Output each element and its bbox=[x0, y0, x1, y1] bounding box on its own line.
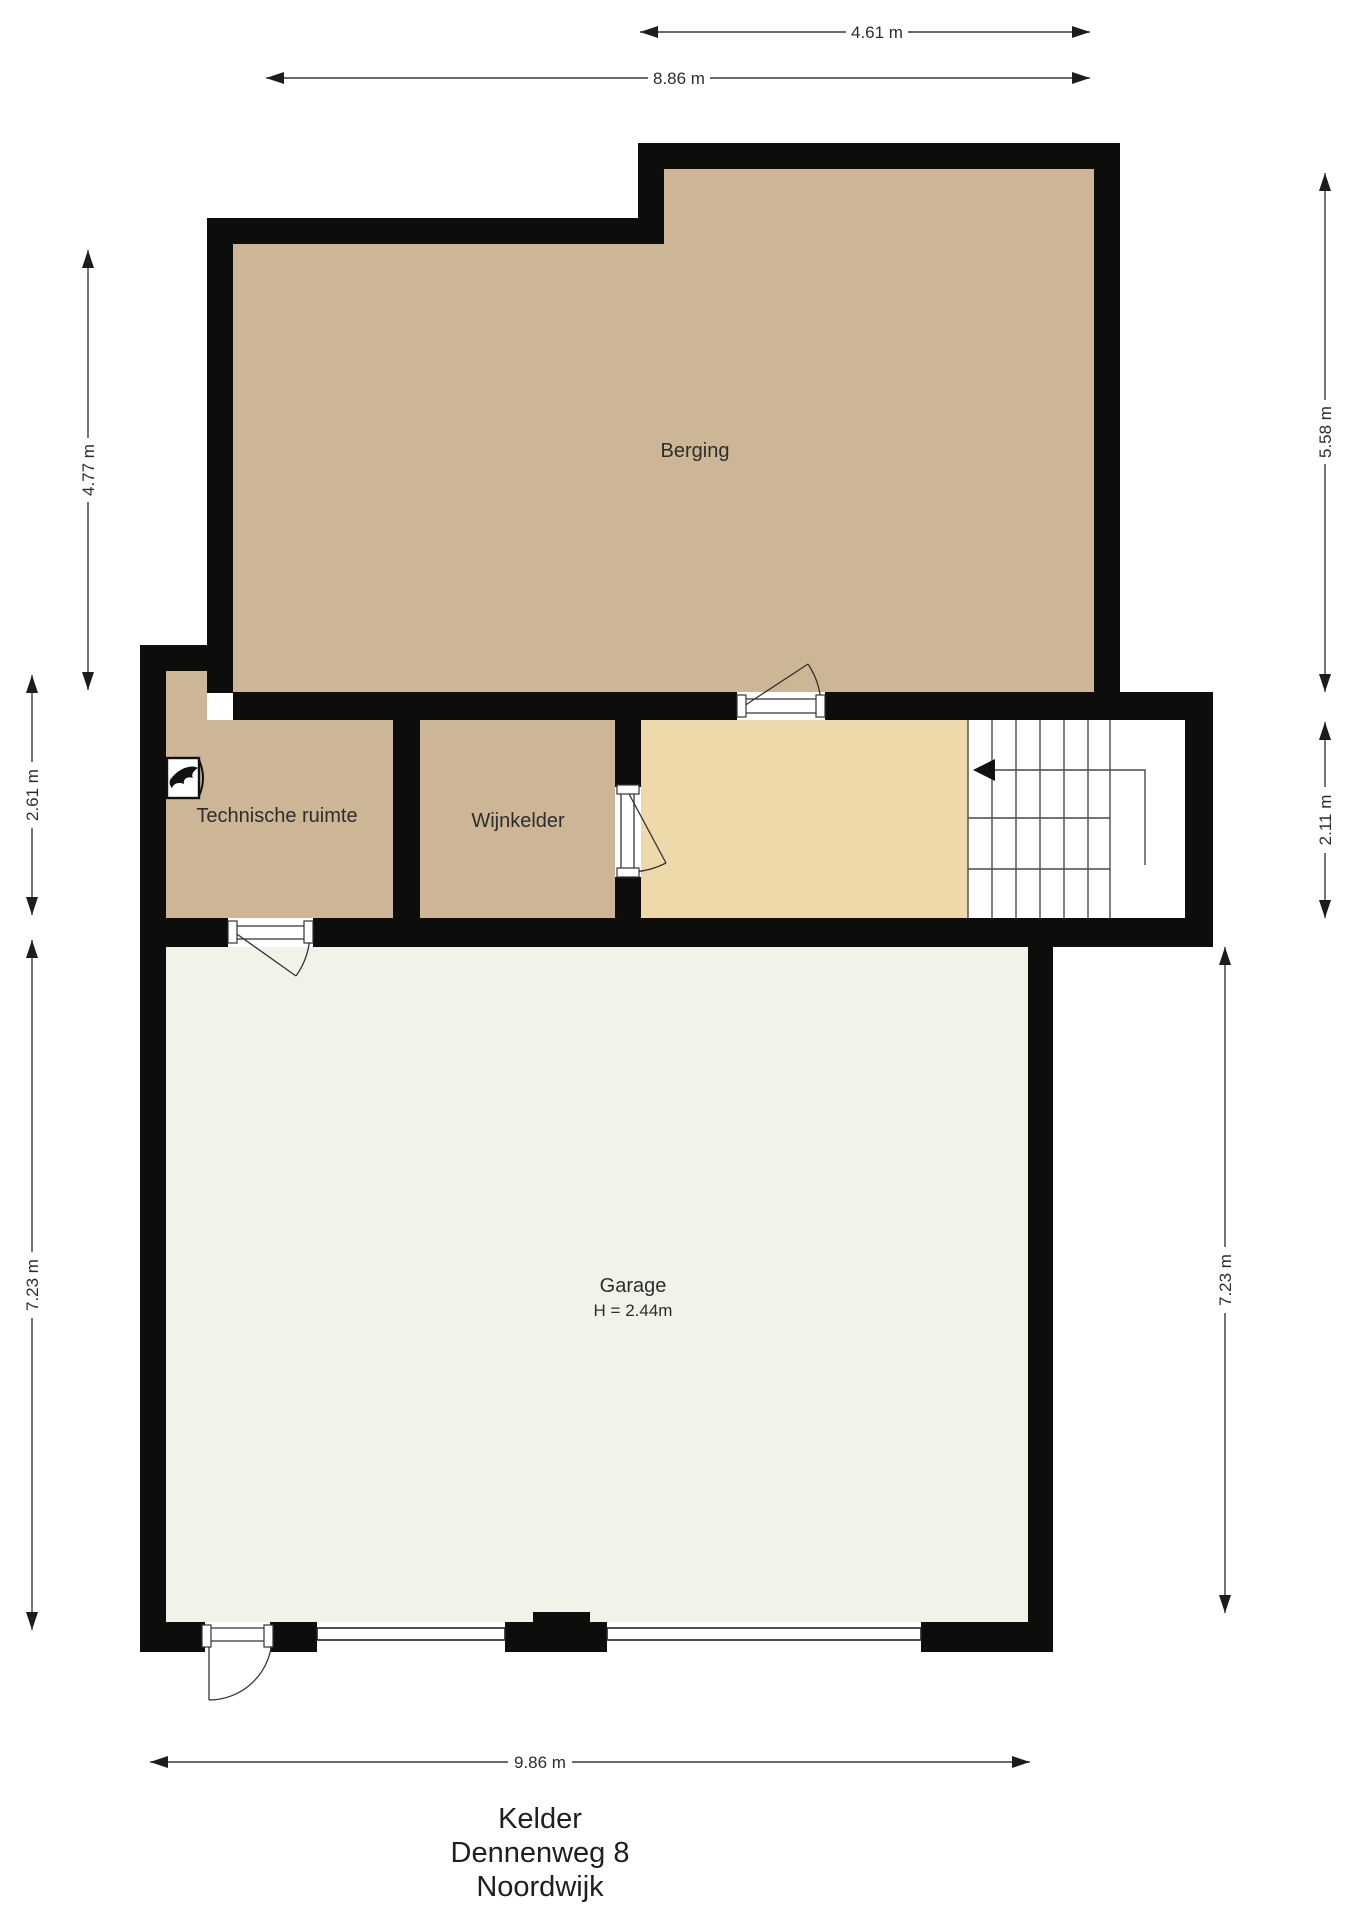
wall-berging-bottom-left bbox=[233, 692, 737, 720]
title-floor: Kelder bbox=[498, 1803, 582, 1835]
wall-garage-bottom-2 bbox=[270, 1622, 317, 1652]
door-swing-arc bbox=[209, 1637, 272, 1700]
floor-plan-canvas: 4.61 m 8.86 m 9.86 m 4.77 m 2.61 m 7.23 … bbox=[0, 0, 1358, 1920]
floor-plan-page: 4.61 m 8.86 m 9.86 m 4.77 m 2.61 m 7.23 … bbox=[0, 0, 1358, 1920]
dimension-label-right-top: 5.58 m bbox=[1316, 406, 1335, 458]
dimension-label-bottom: 9.86 m bbox=[514, 1753, 566, 1772]
door-opening bbox=[737, 692, 825, 720]
staircase-floor bbox=[968, 720, 1185, 918]
room-label-technische: Technische ruimte bbox=[196, 805, 357, 827]
dimension-label-right-bottom: 7.23 m bbox=[1216, 1254, 1235, 1306]
hallway-floor bbox=[641, 720, 968, 918]
room-label-garage-height: H = 2.44m bbox=[594, 1301, 673, 1320]
wall-garage-right bbox=[1028, 947, 1053, 1652]
room-label-wijnkelder: Wijnkelder bbox=[471, 810, 565, 832]
room-garage-floor bbox=[166, 947, 1028, 1622]
dimension-label-left-mid: 2.61 m bbox=[23, 769, 42, 821]
room-label-berging: Berging bbox=[661, 440, 730, 462]
dimension-label-top-outer: 8.86 m bbox=[653, 69, 705, 88]
wall-berging-right bbox=[1094, 143, 1120, 692]
dimension-label-right-mid: 2.11 m bbox=[1316, 795, 1335, 846]
room-berging-floor bbox=[233, 169, 1094, 692]
wall-top-upper bbox=[638, 143, 1120, 169]
wall-top-lower bbox=[207, 218, 664, 244]
wall-pillar-notch bbox=[533, 1612, 590, 1622]
wall-garage-bottom-4 bbox=[921, 1622, 1053, 1652]
wall-divider-wijnkelder-hall-upper bbox=[615, 720, 641, 787]
wall-garage-bottom-3 bbox=[505, 1622, 607, 1652]
wall-divider-wijnkelder-hall-lower bbox=[615, 877, 641, 918]
window-garage-left bbox=[317, 1628, 505, 1640]
wall-garage-bottom-1 bbox=[140, 1622, 205, 1652]
wall-left-outer bbox=[140, 645, 166, 1652]
title-city: Noordwijk bbox=[476, 1871, 604, 1903]
wall-stairs-right bbox=[1185, 692, 1213, 947]
dimension-label-left-top: 4.77 m bbox=[79, 444, 98, 496]
wall-divider-technische-wijnkelder bbox=[393, 720, 420, 918]
wall-middle-bottom-left bbox=[166, 918, 228, 947]
window-garage-wide bbox=[607, 1628, 921, 1640]
door-opening bbox=[228, 918, 313, 947]
room-label-garage: Garage bbox=[600, 1275, 667, 1297]
wall-middle-bottom-right bbox=[313, 918, 1213, 947]
windows bbox=[317, 1628, 921, 1640]
boiler-icon bbox=[167, 758, 203, 798]
wall-berging-left bbox=[207, 218, 233, 693]
door-garage-entry bbox=[202, 1625, 273, 1700]
dimension-label-top-inner: 4.61 m bbox=[851, 23, 903, 42]
title-street: Dennenweg 8 bbox=[451, 1837, 630, 1869]
wall-berging-bottom-right bbox=[825, 692, 1213, 720]
dimension-label-left-bottom: 7.23 m bbox=[23, 1259, 42, 1311]
door-opening bbox=[615, 787, 641, 877]
